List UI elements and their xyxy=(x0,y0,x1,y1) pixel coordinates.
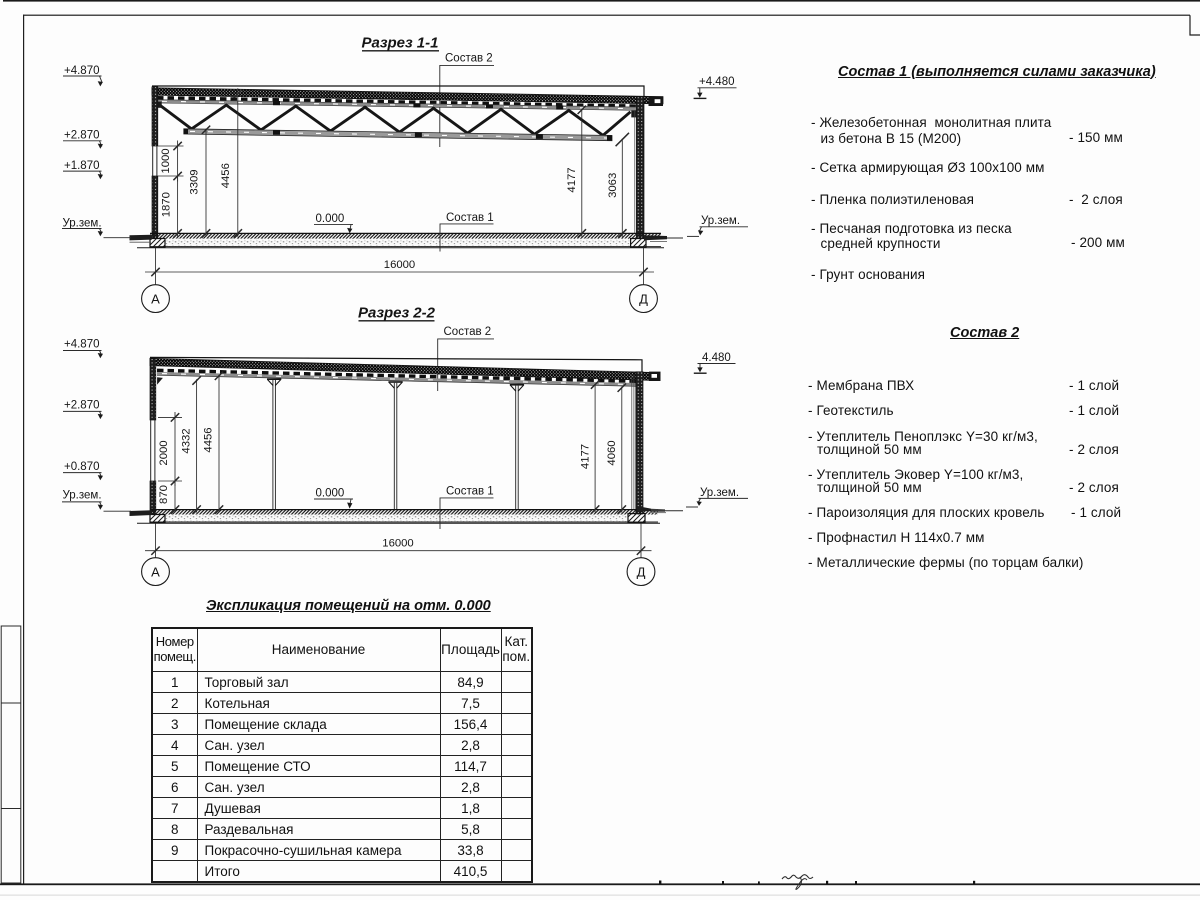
svg-text:3063: 3063 xyxy=(607,173,619,198)
svg-text:4177: 4177 xyxy=(580,444,592,469)
svg-text:4060: 4060 xyxy=(606,440,618,465)
svg-text:16000: 16000 xyxy=(382,538,413,550)
svg-text:16000: 16000 xyxy=(384,259,415,271)
svg-text:+2.870: +2.870 xyxy=(64,400,100,412)
svg-text:+4.870: +4.870 xyxy=(64,65,100,77)
svg-text:Разрез 2-2: Разрез 2-2 xyxy=(358,305,436,322)
svg-text:Состав 1: Состав 1 xyxy=(446,212,494,224)
svg-text:Разрез 1-1: Разрез 1-1 xyxy=(361,35,438,52)
svg-text:4.480: 4.480 xyxy=(702,352,731,364)
svg-text:Д: Д xyxy=(637,564,646,579)
svg-text:Ур.зем.: Ур.зем. xyxy=(63,490,102,502)
svg-text:1000: 1000 xyxy=(160,148,172,173)
svg-text:Ур.зем.: Ур.зем. xyxy=(700,487,739,499)
svg-text:+4.870: +4.870 xyxy=(64,339,100,351)
svg-text:А: А xyxy=(151,291,160,306)
svg-text:2000: 2000 xyxy=(158,440,170,465)
svg-text:Ур.зем.: Ур.зем. xyxy=(701,215,740,227)
svg-text:+4.480: +4.480 xyxy=(699,76,735,88)
svg-text:4332: 4332 xyxy=(180,428,192,453)
svg-text:4177: 4177 xyxy=(566,167,578,192)
svg-text:3309: 3309 xyxy=(189,169,201,194)
svg-text:+2.870: +2.870 xyxy=(64,130,100,142)
svg-text:4456: 4456 xyxy=(202,427,214,452)
svg-text:Ур.зем.: Ур.зем. xyxy=(63,217,102,229)
svg-text:Д: Д xyxy=(639,291,648,306)
svg-text:+0.870: +0.870 xyxy=(64,461,100,473)
svg-text:0.000: 0.000 xyxy=(316,488,345,500)
svg-text:870: 870 xyxy=(158,485,170,504)
svg-text:Состав 1: Состав 1 xyxy=(446,486,494,498)
svg-text:А: А xyxy=(151,564,160,579)
svg-text:1870: 1870 xyxy=(161,192,173,217)
svg-text:Состав 2: Состав 2 xyxy=(445,53,493,65)
svg-text:+1.870: +1.870 xyxy=(64,160,100,172)
svg-text:4456: 4456 xyxy=(220,163,232,188)
svg-text:0.000: 0.000 xyxy=(316,213,345,225)
svg-text:Состав 2: Состав 2 xyxy=(444,326,492,338)
